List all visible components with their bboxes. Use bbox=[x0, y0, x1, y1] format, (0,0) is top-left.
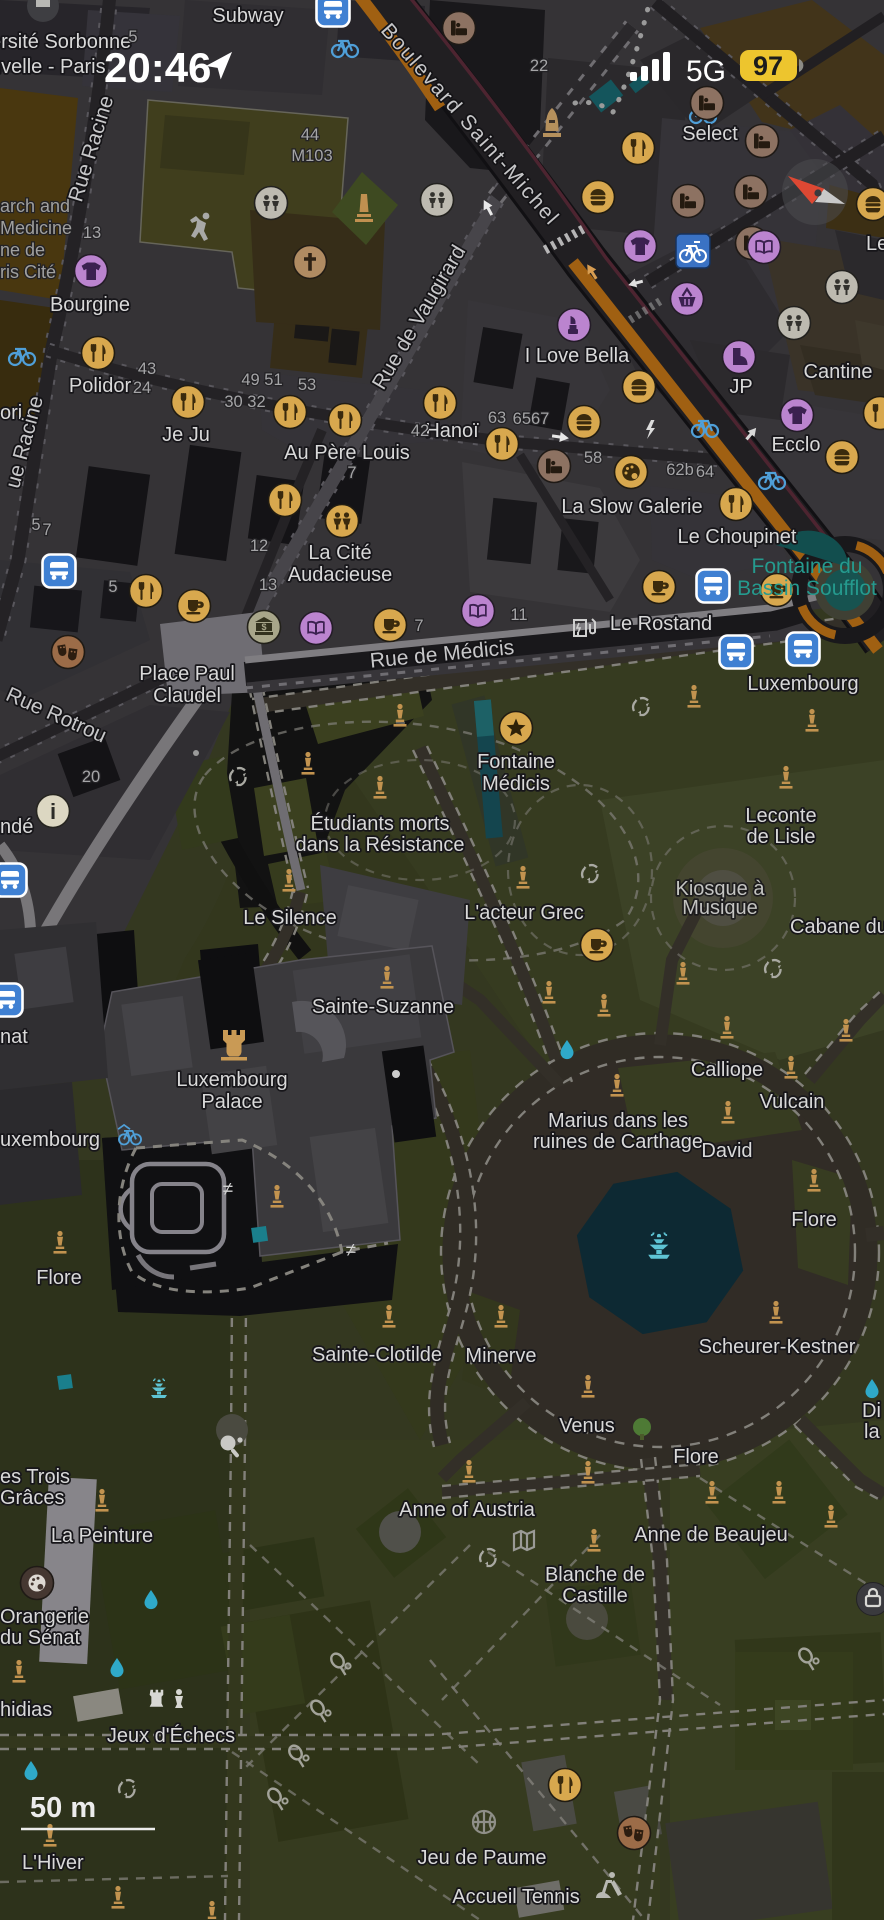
svg-text:uvelle - Paris: uvelle - Paris bbox=[0, 56, 106, 78]
svg-text:la: la bbox=[864, 1421, 880, 1443]
svg-text:12: 12 bbox=[250, 537, 268, 555]
svg-text:Hanoï: Hanoï bbox=[425, 420, 479, 442]
svg-text:hidias: hidias bbox=[0, 1699, 52, 1721]
svg-text:11: 11 bbox=[510, 606, 527, 624]
svg-text:Le: Le bbox=[866, 233, 884, 255]
svg-text:Subway: Subway bbox=[212, 5, 283, 27]
svg-text:58: 58 bbox=[584, 449, 602, 467]
svg-text:Musique: Musique bbox=[682, 897, 758, 919]
svg-text:13: 13 bbox=[259, 576, 277, 594]
svg-text:Scheurer-Kestner: Scheurer-Kestner bbox=[699, 1336, 856, 1358]
svg-text:Le Rostand: Le Rostand bbox=[610, 613, 712, 635]
svg-text:L'acteur Grec: L'acteur Grec bbox=[464, 902, 583, 924]
svg-text:5G: 5G bbox=[686, 55, 726, 88]
svg-text:Polidor: Polidor bbox=[69, 375, 132, 397]
svg-text:Anne of Austria: Anne of Austria bbox=[399, 1499, 536, 1521]
svg-text:22: 22 bbox=[530, 57, 548, 75]
svg-text:Fontaine du: Fontaine du bbox=[752, 555, 863, 578]
svg-text:Jeu de Paume: Jeu de Paume bbox=[418, 1847, 547, 1869]
svg-text:Cantine: Cantine bbox=[804, 361, 873, 383]
svg-text:Étudiants morts: Étudiants morts bbox=[311, 812, 450, 835]
svg-text:49 51: 49 51 bbox=[241, 371, 282, 389]
svg-text:de Lisle: de Lisle bbox=[747, 826, 816, 848]
svg-text:ruines de Carthage: ruines de Carthage bbox=[533, 1131, 703, 1153]
svg-text:53: 53 bbox=[298, 376, 316, 394]
svg-text:L'Hiver: L'Hiver bbox=[22, 1852, 84, 1874]
svg-text:du Sénat: du Sénat bbox=[0, 1627, 81, 1649]
svg-text:Le Choupinet: Le Choupinet bbox=[678, 526, 797, 548]
svg-text:Anne de Beaujeu: Anne de Beaujeu bbox=[634, 1524, 787, 1546]
svg-text:30 32: 30 32 bbox=[224, 393, 265, 411]
svg-text:$: $ bbox=[261, 622, 266, 632]
svg-text:uxembourg: uxembourg bbox=[0, 1129, 100, 1151]
svg-text:Vulcain: Vulcain bbox=[760, 1091, 825, 1113]
svg-text:Select: Select bbox=[682, 123, 738, 145]
svg-text:Blanche de: Blanche de bbox=[545, 1564, 645, 1586]
svg-text:Ecclo: Ecclo bbox=[772, 434, 821, 456]
svg-text:Leconte: Leconte bbox=[745, 805, 816, 827]
svg-text:ndé: ndé bbox=[0, 816, 33, 838]
svg-text:63: 63 bbox=[488, 409, 506, 427]
svg-text:5: 5 bbox=[108, 578, 117, 596]
svg-text:Flore: Flore bbox=[791, 1209, 837, 1231]
svg-text:Sainte-Clotilde: Sainte-Clotilde bbox=[312, 1344, 442, 1366]
svg-text:La Peinture: La Peinture bbox=[51, 1525, 153, 1547]
svg-text:44: 44 bbox=[301, 126, 319, 144]
svg-text:≠: ≠ bbox=[223, 1179, 233, 1200]
svg-text:Jeux d'Échecs: Jeux d'Échecs bbox=[107, 1724, 235, 1747]
svg-text:≠: ≠ bbox=[346, 1240, 356, 1261]
svg-text:Marius dans les: Marius dans les bbox=[548, 1110, 688, 1132]
svg-text:20: 20 bbox=[82, 768, 100, 786]
svg-text:Cabane du: Cabane du bbox=[790, 916, 884, 938]
svg-text:Médicis: Médicis bbox=[482, 773, 550, 795]
svg-text:nat: nat bbox=[0, 1026, 28, 1048]
svg-text:ne de: ne de bbox=[0, 240, 45, 260]
svg-text:i: i bbox=[50, 799, 56, 824]
svg-text:dans la Résistance: dans la Résistance bbox=[296, 834, 465, 856]
svg-text:M103: M103 bbox=[291, 147, 332, 165]
svg-text:Medicine: Medicine bbox=[0, 218, 72, 238]
svg-text:Grâces: Grâces bbox=[0, 1487, 64, 1509]
svg-text:7: 7 bbox=[414, 617, 423, 635]
svg-text:Fontaine: Fontaine bbox=[477, 751, 555, 773]
svg-text:ris Cité: ris Cité bbox=[0, 262, 56, 282]
svg-text:Palace: Palace bbox=[201, 1091, 262, 1113]
svg-text:Luxembourg: Luxembourg bbox=[176, 1069, 287, 1091]
svg-text:6567: 6567 bbox=[513, 410, 550, 428]
svg-text:Au Père Louis: Au Père Louis bbox=[284, 442, 410, 464]
svg-text:42: 42 bbox=[411, 422, 429, 440]
svg-text:I Love Bella: I Love Bella bbox=[525, 345, 630, 367]
svg-text:La Cité: La Cité bbox=[308, 542, 371, 564]
svg-text:Claudel: Claudel bbox=[153, 685, 221, 707]
svg-text:7: 7 bbox=[42, 521, 51, 539]
svg-text:50 m: 50 m bbox=[30, 1792, 96, 1824]
svg-text:64: 64 bbox=[696, 463, 714, 481]
svg-text:Place Paul: Place Paul bbox=[139, 663, 235, 685]
svg-text:Audacieuse: Audacieuse bbox=[288, 564, 393, 586]
svg-text:Flore: Flore bbox=[36, 1267, 82, 1289]
svg-text:La Slow Galerie: La Slow Galerie bbox=[561, 496, 702, 518]
svg-text:7: 7 bbox=[347, 464, 356, 482]
svg-text:43: 43 bbox=[138, 360, 156, 378]
svg-text:Calliope: Calliope bbox=[691, 1059, 763, 1081]
svg-text:Je Ju: Je Ju bbox=[162, 424, 210, 446]
svg-text:Flore: Flore bbox=[673, 1446, 719, 1468]
svg-text:20:46: 20:46 bbox=[104, 44, 211, 91]
svg-text:Venus: Venus bbox=[559, 1415, 615, 1437]
svg-text:62b: 62b bbox=[666, 461, 694, 479]
svg-text:Orangerie: Orangerie bbox=[0, 1606, 89, 1628]
svg-text:Le Silence: Le Silence bbox=[243, 907, 336, 929]
svg-text:JP: JP bbox=[729, 376, 752, 398]
svg-text:97: 97 bbox=[753, 51, 783, 81]
svg-text:5: 5 bbox=[31, 516, 40, 534]
svg-text:David: David bbox=[701, 1140, 752, 1162]
svg-text:Sainte-Suzanne: Sainte-Suzanne bbox=[312, 996, 454, 1018]
svg-text:Di: Di bbox=[862, 1400, 881, 1422]
svg-text:24: 24 bbox=[133, 379, 151, 397]
svg-text:Bourgine: Bourgine bbox=[50, 294, 130, 316]
svg-text:Bassin Soufflot: Bassin Soufflot bbox=[737, 577, 877, 600]
svg-text:Castille: Castille bbox=[562, 1585, 628, 1607]
svg-text:Luxembourg: Luxembourg bbox=[747, 673, 858, 695]
svg-text:es Trois: es Trois bbox=[0, 1466, 70, 1488]
svg-text:13: 13 bbox=[83, 224, 101, 242]
svg-text:Minerve: Minerve bbox=[465, 1345, 536, 1367]
svg-text:arch and: arch and bbox=[0, 196, 70, 216]
svg-text:Accueil Tennis: Accueil Tennis bbox=[452, 1886, 579, 1908]
